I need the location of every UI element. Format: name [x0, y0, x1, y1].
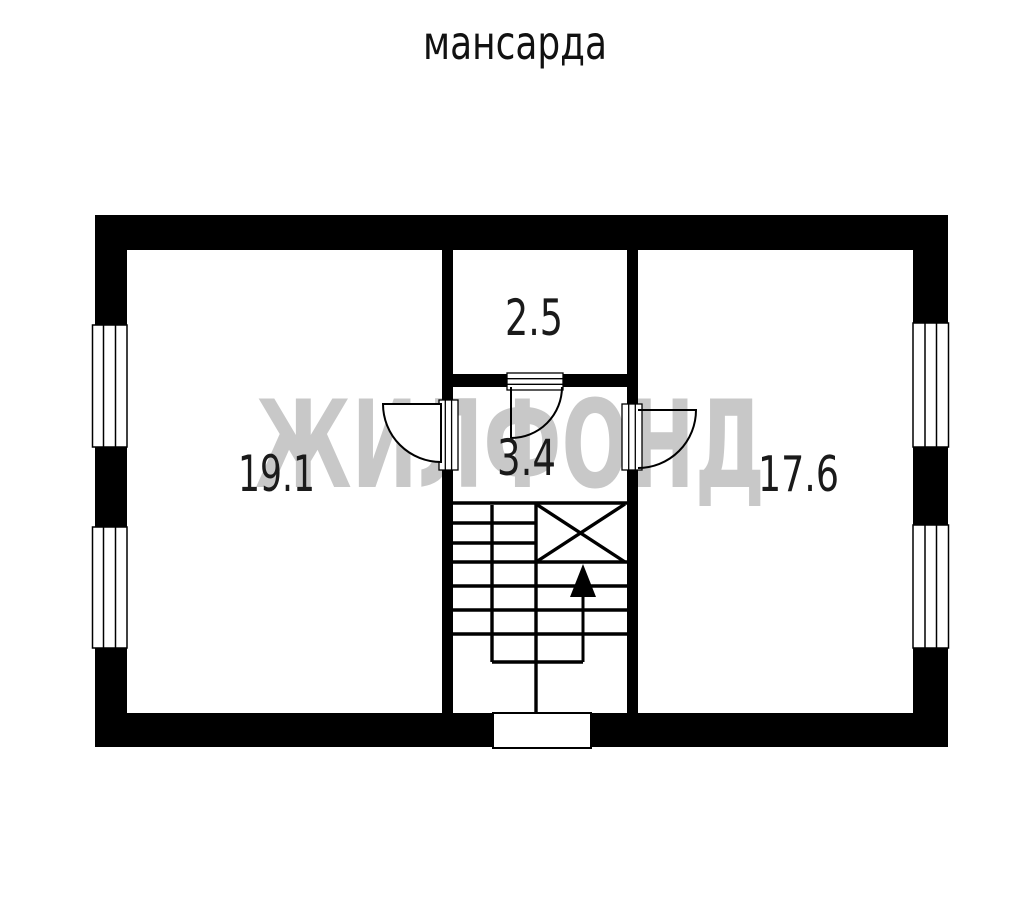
room-label-19-1: 19.1	[238, 445, 315, 503]
door-jamb-room-2-5	[507, 373, 563, 390]
corridor-right-wall	[627, 250, 638, 713]
door-jamb-room-17-6	[622, 404, 642, 470]
floor-title: мансарда	[423, 16, 607, 70]
window-right-upper	[913, 323, 949, 447]
corridor-left-wall	[442, 250, 453, 713]
window-left-lower	[93, 527, 128, 648]
bottom-wall-opening	[493, 713, 591, 748]
floor-plan-drawing: мансарда ЖИЛФОНД	[0, 0, 1024, 913]
window-left-upper	[93, 325, 128, 447]
window-right-lower	[913, 525, 949, 648]
room-label-17-6: 17.6	[758, 446, 839, 503]
room-label-2-5: 2.5	[505, 289, 563, 347]
floor-plan-page: мансарда ЖИЛФОНД	[0, 0, 1024, 913]
room-label-3-4: 3.4	[497, 429, 556, 487]
